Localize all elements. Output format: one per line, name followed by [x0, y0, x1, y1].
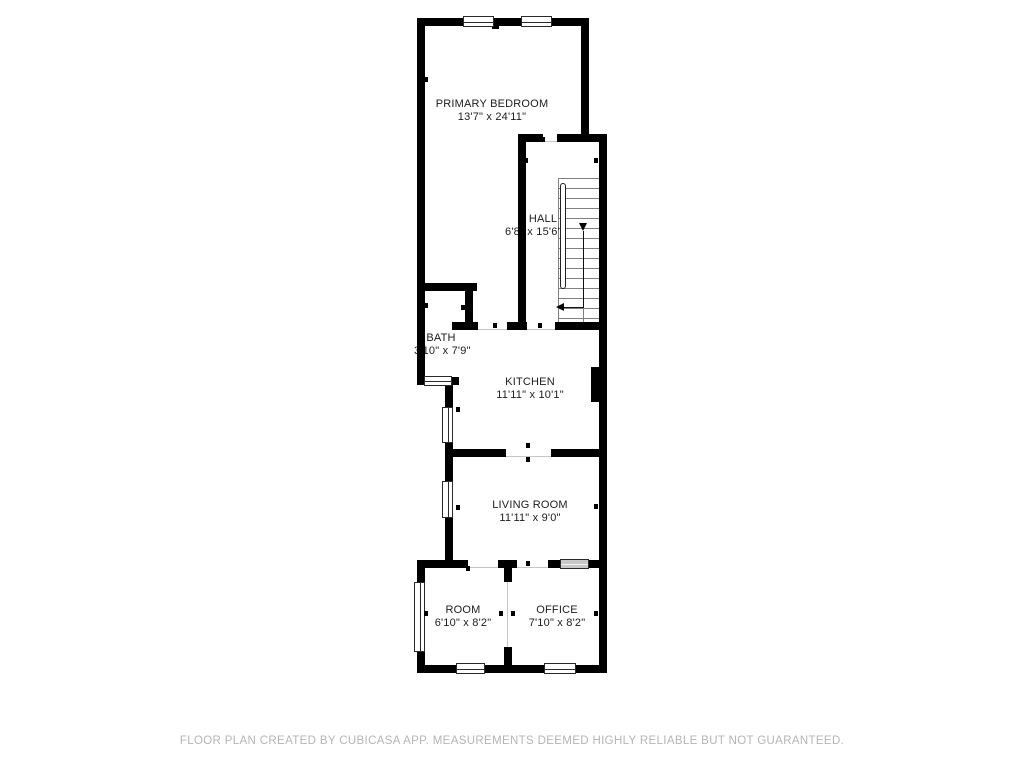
window	[442, 481, 453, 518]
window	[424, 376, 452, 386]
door-opening-line	[543, 141, 557, 142]
wall-tick	[461, 305, 465, 310]
room-label-room: ROOM 6'10" x 8'2"	[435, 604, 492, 630]
wall-tick	[456, 505, 460, 510]
wall-tick	[594, 611, 598, 616]
wall	[417, 665, 607, 673]
room-dimensions: 7'10" x 8'2"	[529, 617, 586, 629]
wall-tick	[594, 158, 598, 163]
door-tick	[511, 611, 515, 616]
room-dimensions: 13'7" x 24'11"	[458, 111, 526, 123]
interior-window	[560, 559, 589, 569]
wall	[507, 322, 527, 330]
wall-tick	[524, 158, 528, 163]
room-dimensions: 11'11" x 9'0"	[499, 512, 560, 524]
wall-tick	[424, 303, 428, 308]
door-opening-line	[468, 567, 498, 568]
door-opening-line	[478, 329, 507, 330]
door-tick	[541, 137, 545, 142]
door-tick	[526, 443, 530, 448]
stair-handrail	[560, 183, 566, 289]
room-name: PRIMARY BEDROOM	[436, 98, 549, 110]
wall	[445, 449, 506, 457]
door-tick	[526, 457, 530, 462]
wall	[551, 449, 607, 457]
room-name: HALL	[529, 213, 557, 225]
wall	[518, 134, 526, 330]
wall-tick	[424, 77, 428, 82]
room-label-living-room: LIVING ROOM 11'11" x 9'0"	[492, 499, 568, 525]
wall	[417, 18, 425, 385]
room-name: ROOM	[445, 604, 480, 616]
room-label-hall: HALL	[529, 213, 557, 226]
door-tick	[526, 561, 530, 566]
window	[521, 16, 552, 27]
window	[463, 16, 494, 27]
floor-plan: PRIMARY BEDROOM 13'7" x 24'11" HALL 6'8"…	[0, 0, 1024, 768]
window	[414, 582, 425, 652]
stair-arrow-shaft	[583, 231, 584, 308]
room-name: LIVING ROOM	[492, 499, 568, 511]
room-label-office: OFFICE 7'10" x 8'2"	[529, 604, 586, 630]
wall-tick	[594, 504, 598, 509]
wall-tick	[584, 77, 588, 82]
wall	[417, 18, 589, 26]
room-label-kitchen: KITCHEN 11'11" x 10'1"	[496, 376, 564, 402]
door-tick	[499, 611, 503, 616]
footer-disclaimer: FLOOR PLAN CREATED BY CUBICASA APP. MEAS…	[180, 735, 844, 747]
stair-exit-arrow-icon	[556, 303, 564, 311]
room-dimensions-hall: 6'8" x 15'6"	[505, 226, 562, 239]
stair-arrow-shaft	[563, 307, 584, 308]
stair-down-arrow-icon	[579, 223, 587, 231]
door-opening-line	[517, 567, 548, 568]
room-label-bath: BATH	[426, 332, 455, 345]
door-opening-line	[507, 582, 508, 647]
room-dimensions: 6'10" x 8'2"	[435, 617, 492, 629]
window	[442, 407, 453, 443]
room-name: OFFICE	[536, 604, 578, 616]
door-tick	[557, 137, 561, 142]
window	[456, 663, 485, 674]
room-name: BATH	[426, 332, 455, 344]
door-tick	[466, 566, 470, 571]
door-tick	[493, 323, 497, 328]
room-name: KITCHEN	[505, 376, 555, 388]
wall	[588, 560, 607, 568]
wall	[555, 322, 607, 330]
wall	[504, 560, 512, 582]
room-label-primary-bedroom: PRIMARY BEDROOM 13'7" x 24'11"	[436, 98, 549, 124]
wall-tick	[424, 611, 428, 616]
door-tick	[538, 323, 542, 328]
room-dimensions: 11'11" x 10'1"	[496, 389, 564, 401]
door-opening-line	[527, 329, 555, 330]
wall	[599, 134, 607, 673]
wall-tick	[456, 407, 460, 412]
window	[544, 663, 576, 674]
wall	[452, 322, 478, 330]
chimney-block	[591, 367, 601, 402]
